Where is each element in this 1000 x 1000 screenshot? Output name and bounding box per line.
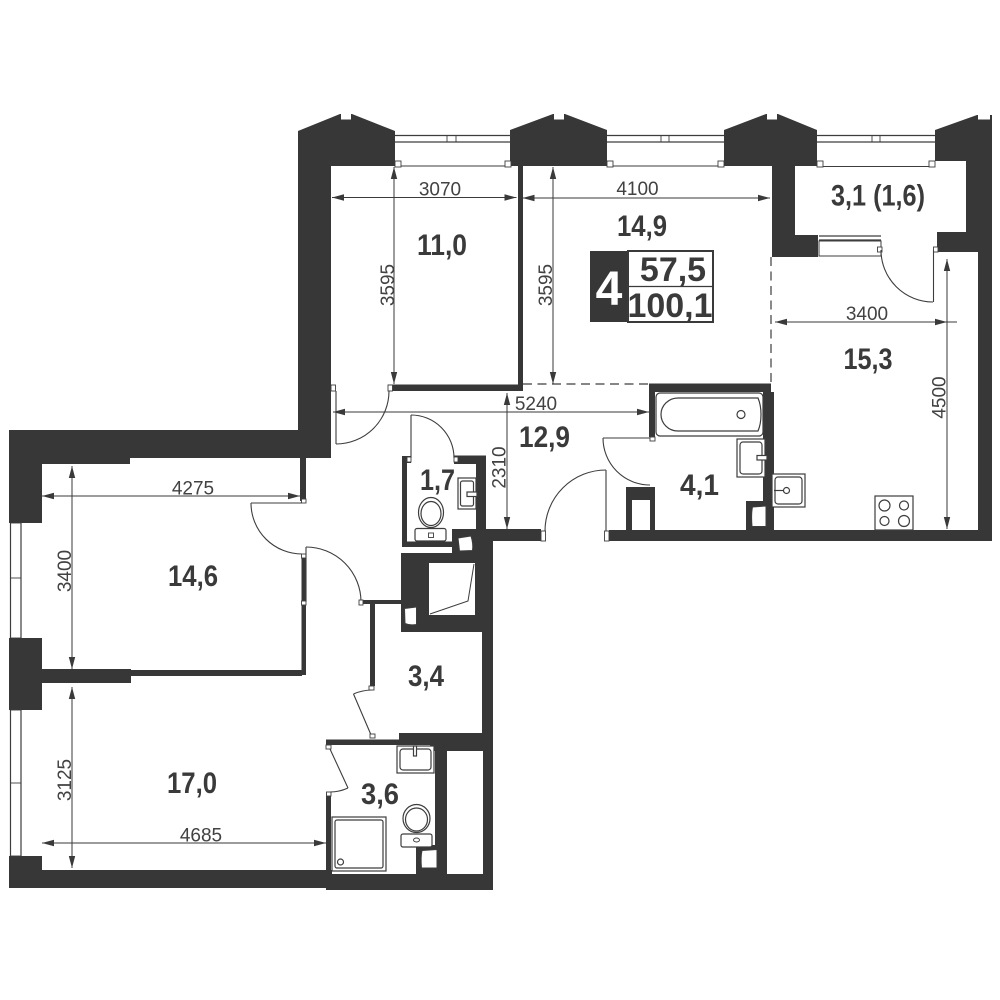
svg-text:2310: 2310	[490, 446, 511, 488]
svg-text:3,6: 3,6	[361, 778, 399, 811]
svg-text:3070: 3070	[419, 180, 461, 201]
svg-text:3,1 (1,6): 3,1 (1,6)	[831, 180, 925, 213]
svg-text:1,7: 1,7	[420, 464, 455, 497]
svg-text:12,9: 12,9	[519, 421, 570, 454]
svg-text:3595: 3595	[536, 264, 557, 306]
svg-text:17,0: 17,0	[167, 767, 217, 800]
svg-text:4100: 4100	[616, 179, 658, 200]
svg-text:57,5: 57,5	[640, 251, 706, 289]
svg-text:11,0: 11,0	[417, 229, 467, 262]
svg-text:14,9: 14,9	[617, 210, 667, 243]
svg-text:5240: 5240	[515, 394, 557, 415]
svg-text:3125: 3125	[55, 759, 76, 801]
svg-text:4500: 4500	[930, 376, 951, 418]
svg-text:3,4: 3,4	[408, 660, 444, 693]
svg-text:4275: 4275	[172, 479, 214, 500]
svg-text:100,1: 100,1	[627, 287, 712, 325]
svg-text:14,6: 14,6	[168, 560, 218, 593]
svg-text:3595: 3595	[378, 264, 399, 306]
svg-text:3400: 3400	[846, 304, 888, 325]
svg-text:4685: 4685	[180, 826, 222, 847]
svg-text:3400: 3400	[55, 550, 76, 592]
svg-text:15,3: 15,3	[844, 343, 893, 376]
svg-text:4,1: 4,1	[680, 469, 719, 502]
svg-text:4: 4	[596, 263, 623, 316]
